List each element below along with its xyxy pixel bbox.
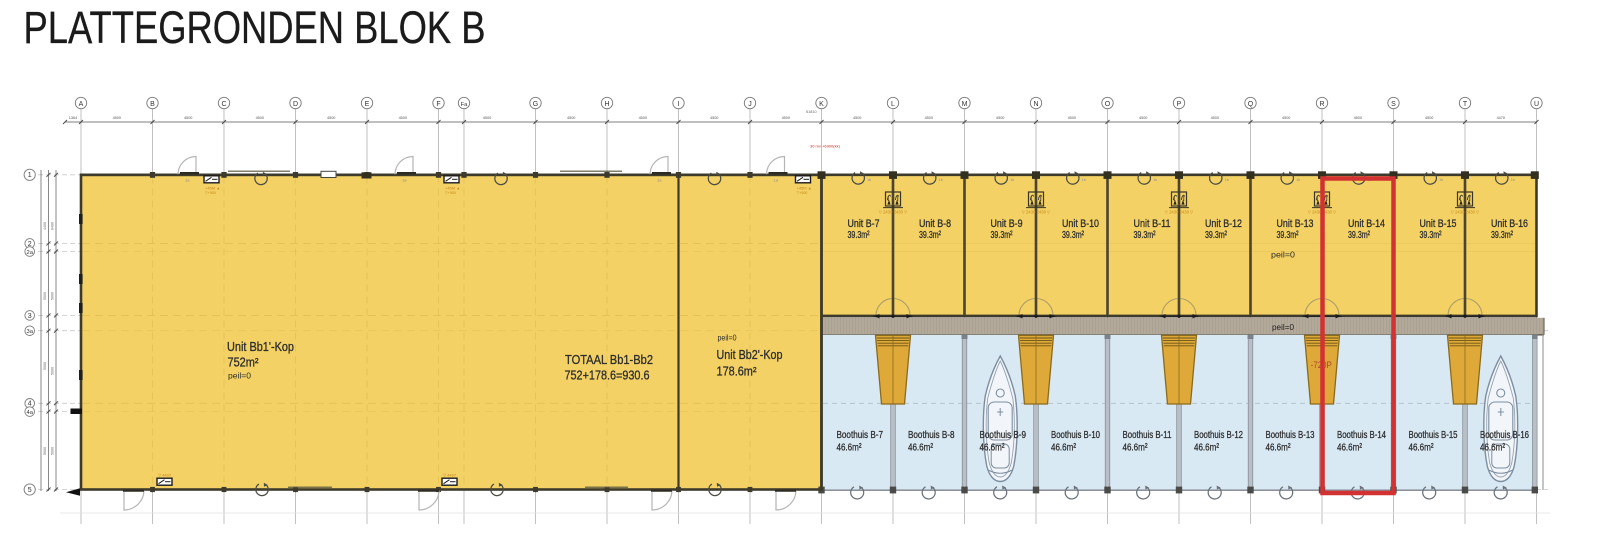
svg-text:4500: 4500 [567, 116, 575, 120]
svg-text:K: K [819, 101, 824, 108]
svg-text:Boothuis B-8: Boothuis B-8 [908, 429, 955, 441]
svg-text:4500: 4500 [483, 116, 491, 120]
svg-text:51810: 51810 [806, 110, 817, 114]
svg-text:39.3m²: 39.3m² [1277, 230, 1299, 241]
svg-text:PLATTEGRONDEN BLOK B: PLATTEGRONDEN BLOK B [24, 2, 486, 53]
svg-text:1b: 1b [867, 178, 871, 182]
svg-text:Boothuis B-12: Boothuis B-12 [1194, 429, 1243, 441]
svg-text:B: B [150, 101, 155, 108]
svg-text:▽ 2430 2430 ▽: ▽ 2430 2430 ▽ [1022, 210, 1051, 215]
svg-text:D: D [293, 101, 298, 108]
svg-text:H: H [604, 101, 609, 108]
svg-text:1a: 1a [657, 178, 662, 183]
svg-text:peil=0: peil=0 [1271, 250, 1295, 260]
svg-text:46.6m²: 46.6m² [1123, 443, 1149, 454]
svg-text:46.6m²: 46.6m² [1409, 443, 1435, 454]
svg-text:E: E [365, 101, 370, 108]
svg-text:4500: 4500 [1282, 116, 1290, 120]
svg-text:5000: 5000 [51, 447, 55, 455]
svg-text:Boothuis B-10: Boothuis B-10 [1051, 429, 1100, 441]
svg-text:Unit B-12: Unit B-12 [1205, 218, 1242, 230]
svg-text:46.6m²: 46.6m² [1051, 443, 1077, 454]
svg-text:Unit B-14: Unit B-14 [1348, 218, 1385, 230]
svg-text:N: N [1033, 101, 1038, 108]
svg-text:4500: 4500 [925, 116, 933, 120]
svg-text:1b: 1b [1511, 178, 1515, 182]
svg-text:1b: 1b [1225, 178, 1229, 182]
svg-text:P: P [1177, 101, 1182, 108]
svg-text:▽ 4497: ▽ 4497 [443, 473, 457, 478]
svg-text:4500: 4500 [1139, 116, 1147, 120]
svg-text:4500: 4500 [1211, 116, 1219, 120]
svg-text:M: M [962, 101, 968, 108]
svg-text:I: I [678, 101, 680, 108]
svg-text:39.3m²: 39.3m² [1062, 230, 1084, 241]
svg-text:4500: 4500 [1425, 116, 1433, 120]
svg-text:4500: 4500 [782, 116, 790, 120]
svg-text:+45M ▲: +45M ▲ [205, 186, 220, 191]
svg-text:Q: Q [1248, 101, 1254, 108]
svg-text:Boothuis B-7: Boothuis B-7 [837, 429, 884, 441]
svg-text:1b: 1b [1439, 178, 1443, 182]
svg-text:39.3m²: 39.3m² [991, 230, 1013, 241]
svg-text:Unit B-16: Unit B-16 [1491, 218, 1528, 230]
svg-text:peil=0: peil=0 [228, 371, 252, 380]
svg-text:1a: 1a [774, 178, 779, 183]
svg-text:752+178.6=930.6: 752+178.6=930.6 [565, 368, 650, 383]
svg-text:39.3m²: 39.3m² [1491, 230, 1513, 241]
svg-text:1a: 1a [402, 178, 407, 183]
svg-text:▽ 4497: ▽ 4497 [158, 473, 172, 478]
svg-text:O: O [1105, 101, 1111, 108]
svg-text:Boothuis B-13: Boothuis B-13 [1266, 429, 1315, 441]
svg-text:178.6m²: 178.6m² [717, 365, 757, 379]
svg-text:4470: 4470 [1497, 116, 1505, 120]
svg-text:Unit B-10: Unit B-10 [1062, 218, 1099, 230]
svg-text:4500: 4500 [399, 116, 407, 120]
svg-text:Unit B-8: Unit B-8 [919, 218, 951, 230]
svg-text:L: L [891, 101, 895, 108]
svg-text:46.6m²: 46.6m² [837, 443, 863, 454]
svg-text:Boothuis B-16: Boothuis B-16 [1480, 429, 1529, 441]
svg-text:1364: 1364 [69, 116, 77, 120]
svg-text:39.3m²: 39.3m² [1134, 230, 1156, 241]
svg-text:46.6m²: 46.6m² [1194, 443, 1220, 454]
svg-text:A: A [79, 101, 84, 108]
svg-text:1: 1 [28, 172, 32, 179]
svg-text:1a: 1a [185, 178, 190, 183]
svg-text:39.3m²: 39.3m² [1420, 230, 1442, 241]
svg-text:5000: 5000 [51, 367, 55, 375]
svg-text:4500: 4500 [1354, 116, 1362, 120]
svg-text:Boothuis B-9: Boothuis B-9 [980, 429, 1027, 441]
svg-text:TOTAAL Bb1-Bb2: TOTAAL Bb1-Bb2 [565, 352, 653, 367]
svg-text:1b: 1b [1010, 178, 1014, 182]
svg-text:Fa: Fa [461, 102, 469, 108]
svg-text:5: 5 [28, 487, 32, 494]
svg-text:1b: 1b [939, 178, 943, 182]
svg-text:1b: 1b [1296, 178, 1300, 182]
svg-text:4500: 4500 [113, 116, 121, 120]
svg-text:39.3m²: 39.3m² [919, 230, 941, 241]
svg-text:4500: 4500 [1068, 116, 1076, 120]
svg-text:Unit Bb1'-Kop: Unit Bb1'-Kop [227, 340, 294, 354]
svg-text:J: J [748, 101, 752, 108]
svg-text:▽+500: ▽+500 [797, 191, 808, 195]
svg-text:C: C [221, 101, 226, 108]
svg-text:4500: 4500 [853, 116, 861, 120]
svg-text:5000: 5000 [43, 292, 47, 300]
svg-text:39.3m²: 39.3m² [1205, 230, 1227, 241]
svg-text:4a: 4a [26, 410, 33, 416]
svg-text:▽ 2430 2430 ▽: ▽ 2430 2430 ▽ [879, 210, 908, 215]
svg-text:1b: 1b [1082, 178, 1086, 182]
svg-text:▽ 2430 2430 ▽: ▽ 2430 2430 ▽ [1165, 210, 1194, 215]
svg-text:▽+500: ▽+500 [205, 191, 216, 195]
svg-text:2a: 2a [26, 250, 33, 256]
svg-text:Unit Bb2'-Kop: Unit Bb2'-Kop [717, 348, 783, 362]
svg-text:S: S [1391, 101, 1396, 108]
svg-text:4500: 4500 [184, 116, 192, 120]
svg-text:4500: 4500 [327, 116, 335, 120]
svg-text:39.3m²: 39.3m² [1348, 230, 1370, 241]
svg-text:▽ 2430 2430 ▽: ▽ 2430 2430 ▽ [1451, 210, 1480, 215]
svg-text:T: T [1463, 101, 1468, 108]
svg-text:Unit B-13: Unit B-13 [1277, 218, 1314, 230]
svg-text:5000: 5000 [43, 362, 47, 370]
svg-text:▽+500: ▽+500 [445, 191, 456, 195]
svg-text:4500: 4500 [256, 116, 264, 120]
svg-text:4400: 4400 [43, 222, 47, 230]
svg-text:Unit B-7: Unit B-7 [848, 218, 880, 230]
svg-text:46.6m²: 46.6m² [980, 443, 1006, 454]
svg-text:peil=0: peil=0 [1272, 322, 1294, 332]
svg-text:U: U [1534, 101, 1539, 108]
svg-text:39.3m²: 39.3m² [848, 230, 870, 241]
svg-text:46.6m²: 46.6m² [1480, 443, 1506, 454]
svg-text:Boothuis B-14: Boothuis B-14 [1337, 429, 1386, 441]
svg-text:3: 3 [28, 313, 32, 320]
svg-text:30 mv +6900(kk): 30 mv +6900(kk) [810, 144, 841, 149]
svg-text:G: G [533, 101, 538, 108]
svg-text:3a: 3a [26, 329, 33, 335]
svg-text:46.6m²: 46.6m² [908, 443, 934, 454]
svg-text:4500: 4500 [996, 116, 1004, 120]
svg-text:Boothuis B-15: Boothuis B-15 [1409, 429, 1458, 441]
svg-text:Unit B-15: Unit B-15 [1420, 218, 1457, 230]
svg-text:F: F [436, 101, 440, 108]
svg-text:+45M ▲: +45M ▲ [797, 186, 812, 191]
svg-text:+45M ▲: +45M ▲ [445, 186, 460, 191]
svg-text:Unit B-9: Unit B-9 [991, 218, 1023, 230]
svg-text:4500: 4500 [710, 116, 718, 120]
svg-text:46.6m²: 46.6m² [1266, 443, 1292, 454]
svg-text:4500: 4500 [639, 116, 647, 120]
svg-text:752m²: 752m² [228, 355, 259, 369]
svg-text:46.6m²: 46.6m² [1337, 443, 1363, 454]
svg-text:1b: 1b [1153, 178, 1157, 182]
svg-text:Boothuis B-11: Boothuis B-11 [1123, 429, 1172, 441]
svg-text:5600: 5600 [43, 447, 47, 455]
svg-text:Unit B-11: Unit B-11 [1134, 218, 1171, 230]
svg-text:peil=0: peil=0 [718, 334, 737, 343]
svg-text:R: R [1319, 101, 1324, 108]
svg-text:6400: 6400 [51, 222, 55, 230]
svg-text:5000: 5000 [51, 292, 55, 300]
